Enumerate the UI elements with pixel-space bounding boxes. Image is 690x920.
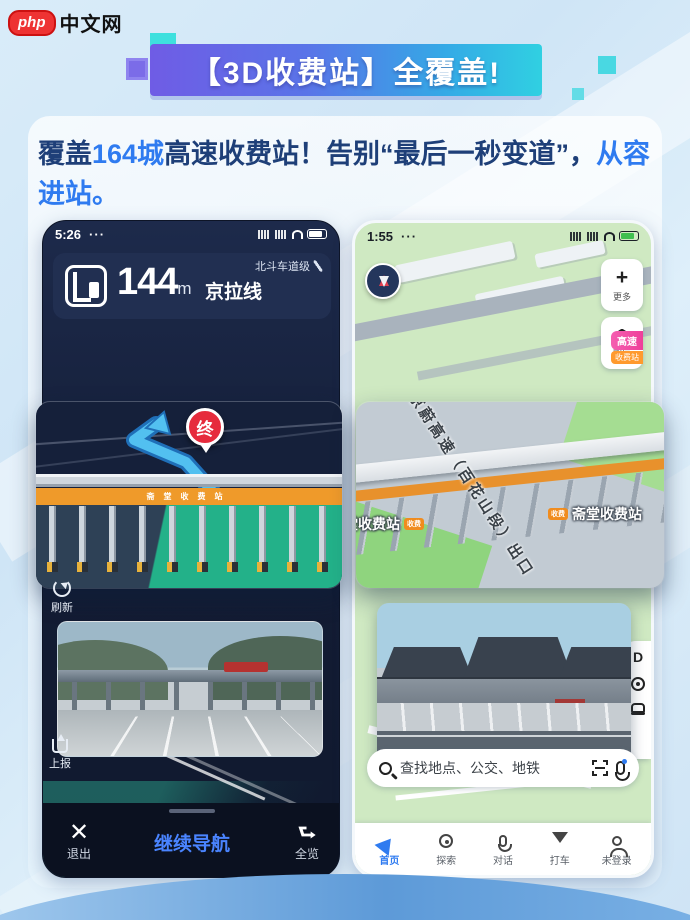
locate-icon[interactable] xyxy=(631,677,645,691)
elevated-road xyxy=(36,474,342,487)
taxi-flag-icon xyxy=(552,832,568,851)
distance-unit: m xyxy=(177,279,190,298)
toll-canopy-banner: 斋堂收费站 xyxy=(36,488,342,505)
toll-booth-lanes xyxy=(40,506,338,568)
continue-navigation-button[interactable]: 继续导航 xyxy=(43,829,340,856)
location-pin-icon xyxy=(439,834,453,848)
toll-chip: 收费 xyxy=(548,508,568,520)
toll-booth-bases xyxy=(40,562,338,572)
car-mode-icon[interactable] xyxy=(631,703,645,713)
search-bar[interactable]: 查找地点、公交、地铁 xyxy=(367,749,639,787)
scan-icon[interactable] xyxy=(592,760,608,776)
tab-voice-chat[interactable]: 对话 xyxy=(480,831,526,867)
battery-icon xyxy=(307,229,327,239)
signal-icon xyxy=(258,230,271,239)
highway-badge-label: 高速 xyxy=(611,331,643,350)
left-status-time: 5:26 xyxy=(55,227,81,242)
station-label-left: 堂收费站 收费 xyxy=(356,514,424,534)
signal-icon xyxy=(570,232,583,241)
photo-red-sign xyxy=(224,662,268,672)
battery-icon xyxy=(619,231,639,241)
left-status-bar: 5:26 ··· xyxy=(43,221,339,247)
tab-taxi[interactable]: 打车 xyxy=(537,831,583,867)
search-placeholder: 查找地点、公交、地铁 xyxy=(400,758,584,778)
refresh-label: 刷新 xyxy=(51,599,73,615)
deco-square-cyan xyxy=(572,88,584,100)
wifi-icon xyxy=(604,232,615,241)
signal-icon xyxy=(275,230,288,239)
site-logo: php 中文网 xyxy=(8,8,123,37)
toll-badge-label: 收费站 xyxy=(611,351,643,364)
deco-square-purple xyxy=(126,58,148,80)
drag-handle[interactable] xyxy=(169,809,215,813)
subtitle-highlight-164: 164城 xyxy=(92,139,164,169)
toll-station-photo xyxy=(377,603,631,765)
page-title: 【3D收费站】全覆盖! xyxy=(191,48,501,92)
php-logo-badge: php xyxy=(8,10,56,36)
3d-toll-render-day: 京蔚高速（百花山段）出口 堂收费站 收费 收费 斋堂收费站 xyxy=(356,402,664,588)
satellite-icon xyxy=(312,260,324,272)
nav-bottom-bar: ✕ 退出 继续导航 ⮐ 全览 xyxy=(43,803,340,877)
voice-search-icon[interactable] xyxy=(616,761,625,775)
destination-pin: 终 xyxy=(186,408,224,446)
subtitle-part1: 覆盖 xyxy=(38,139,92,169)
road-name: 京拉线 xyxy=(205,277,262,304)
compass-icon[interactable] xyxy=(365,263,401,299)
title-banner: 【3D收费站】全覆盖! xyxy=(150,44,542,96)
subtitle-part2: 高速收费站！告别“最后一秒变道”， xyxy=(164,139,596,169)
photo-roof xyxy=(463,637,573,679)
plus-icon: + xyxy=(616,268,628,288)
right-status-time: 1:55 xyxy=(367,229,393,244)
search-icon xyxy=(379,762,392,775)
microphone-icon xyxy=(499,835,507,847)
person-icon xyxy=(612,836,622,846)
tab-home[interactable]: 首页 xyxy=(366,831,412,867)
status-more-dots: ··· xyxy=(401,229,417,244)
toll-station-photo xyxy=(57,621,323,757)
photo-toll-booths xyxy=(58,682,323,712)
3d-toll-render-night: 终 斋堂收费站 xyxy=(36,402,342,588)
more-map-button[interactable]: + 更多 xyxy=(601,259,643,311)
status-more-dots: ··· xyxy=(89,227,105,242)
refresh-control[interactable]: 刷新 xyxy=(51,579,73,615)
site-logo-text: 中文网 xyxy=(60,8,123,37)
photo-road xyxy=(58,710,323,756)
report-control[interactable]: 上报 xyxy=(49,739,71,771)
photo-roof xyxy=(559,647,631,679)
tab-profile[interactable]: 未登录 xyxy=(594,831,640,867)
deco-square-cyan xyxy=(598,56,616,74)
toll-station-name: 斋堂收费站 xyxy=(147,491,232,502)
signal-icon xyxy=(587,232,600,241)
photo-toll-canopy xyxy=(58,670,323,682)
3d-toggle-button[interactable]: D xyxy=(633,649,643,665)
toll-chip: 收费 xyxy=(404,518,424,530)
photo-plaza xyxy=(377,703,631,731)
refresh-icon xyxy=(53,579,71,597)
station-label-right: 收费 斋堂收费站 xyxy=(548,504,642,524)
toll-gate-maneuver-icon xyxy=(65,265,107,307)
lane-level-badge: 北斗车道级 xyxy=(255,258,323,274)
report-icon xyxy=(52,739,68,753)
wifi-icon xyxy=(292,230,303,239)
photo-roof xyxy=(381,647,473,679)
subtitle: 覆盖164城高速收费站！告别“最后一秒变道”，从容进站。 xyxy=(38,134,654,214)
tab-explore[interactable]: 探索 xyxy=(423,831,469,867)
turn-instruction-card: 144m 京拉线 北斗车道级 xyxy=(53,253,331,319)
promo-page: php 中文网 【3D收费站】全覆盖! 覆盖164城高速收费站！告别“最后一秒变… xyxy=(0,0,690,920)
distance-readout: 144m xyxy=(117,261,191,304)
report-label: 上报 xyxy=(49,755,71,771)
bottom-tab-bar: 首页 探索 对话 打车 未登录 xyxy=(355,823,651,875)
highway-toll-badge: 高速 收费站 xyxy=(611,331,643,364)
